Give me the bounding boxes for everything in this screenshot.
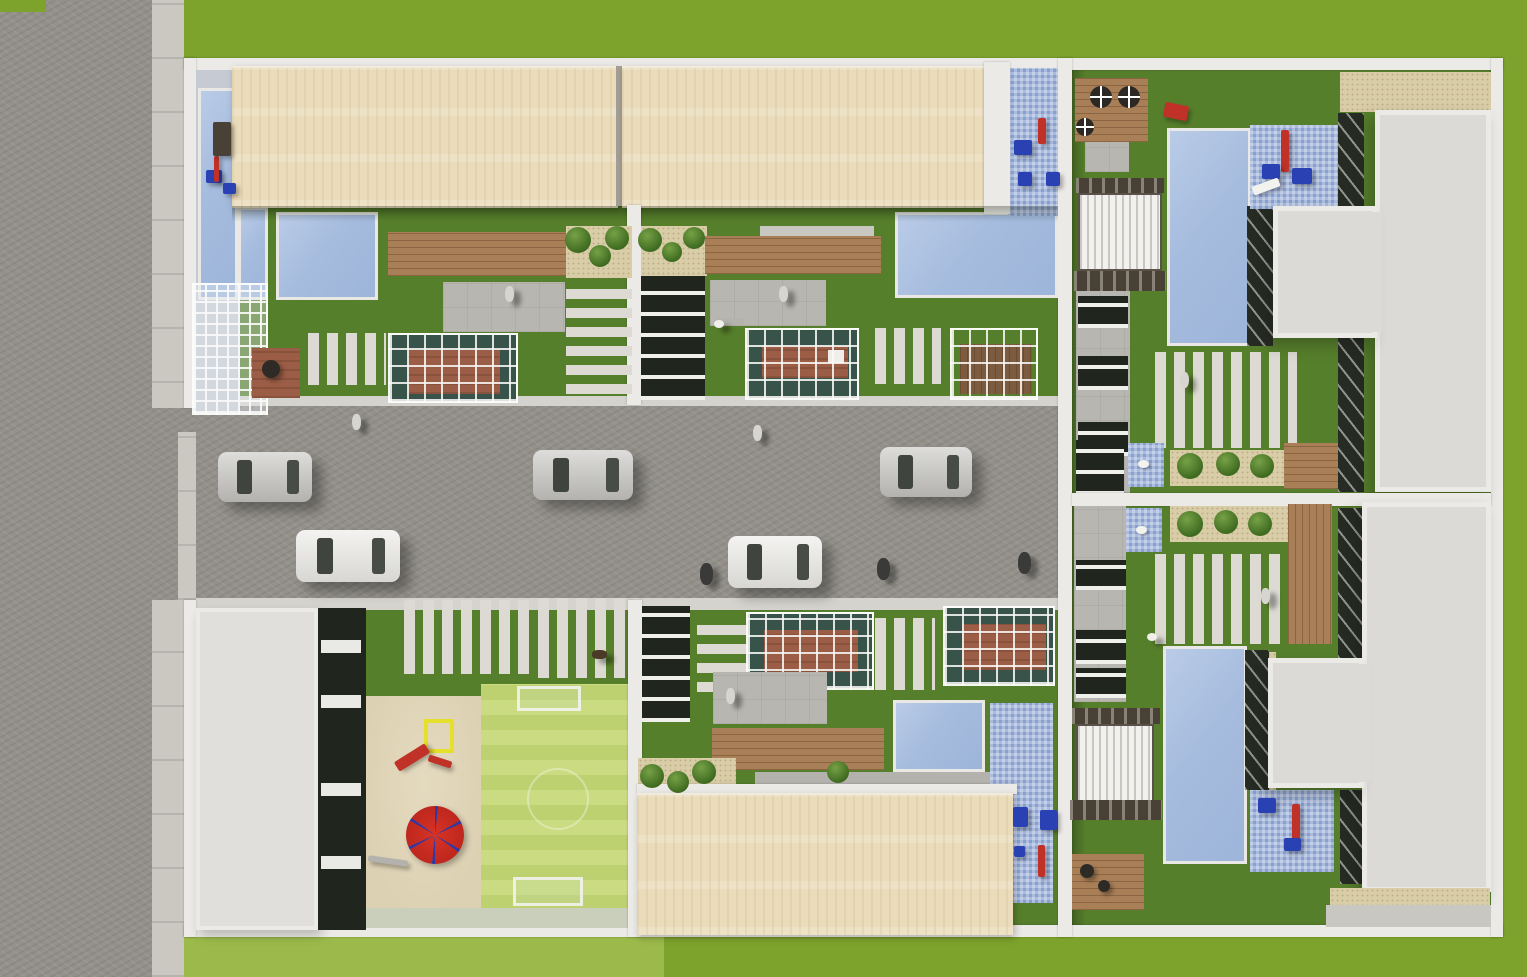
stair-landing	[321, 640, 361, 653]
play-equipment	[1038, 845, 1045, 877]
pedestrian-light	[753, 425, 762, 441]
pedestrian-light	[1261, 588, 1270, 604]
deck-col-se	[1288, 504, 1332, 644]
pitch-center-circle	[527, 768, 589, 830]
pedestrian-light	[779, 286, 788, 302]
play-equipment	[1292, 804, 1300, 840]
deck-south	[712, 728, 884, 770]
trellis-east	[950, 328, 1038, 400]
wall-west-lower	[184, 600, 196, 937]
pedestrian-light	[726, 688, 735, 704]
car-windshield	[747, 544, 762, 579]
bush	[565, 227, 591, 253]
bush	[1177, 453, 1203, 479]
beige-roof-b	[622, 66, 986, 208]
car	[728, 536, 822, 588]
stair-landing	[321, 783, 361, 796]
aerial-render-residential-complex	[0, 0, 1527, 977]
play-equipment	[1258, 798, 1276, 813]
bush	[640, 764, 664, 788]
pedestrian-light	[352, 414, 361, 430]
skylight-strips-south	[642, 606, 690, 722]
roof-shadow	[232, 206, 1058, 222]
rider-dark	[700, 563, 713, 585]
roof-seam-cover-ne	[1370, 212, 1382, 332]
bush	[605, 226, 629, 250]
pedestrian-light	[1180, 372, 1189, 388]
stair-landing	[321, 856, 361, 869]
clubhouse-roof	[196, 608, 318, 930]
patio-left-courtyard	[443, 282, 565, 332]
pedestrian-light	[505, 286, 514, 302]
patio-ne-small	[1085, 142, 1129, 172]
villa-roof-se-wing	[1268, 658, 1364, 788]
car	[880, 447, 972, 497]
beige-roof-c	[637, 793, 1013, 935]
beige-roof-a	[232, 66, 618, 208]
dog	[592, 650, 607, 659]
pergola-ne-louvers	[1078, 193, 1162, 271]
entrance-curb	[178, 432, 196, 600]
stair-landing	[321, 695, 361, 708]
play-equipment	[1262, 164, 1280, 179]
path-se-skylight-1	[1076, 560, 1126, 590]
car-windshield	[237, 460, 252, 494]
trellis-south-2	[943, 606, 1055, 686]
villa-pool-se	[1163, 646, 1247, 864]
play-equipment	[1038, 118, 1046, 144]
play-equipment	[1046, 172, 1060, 186]
path-se-skylight-2	[1076, 630, 1126, 664]
trellis-left	[388, 333, 518, 403]
bush	[1250, 454, 1274, 478]
south-pool-square	[893, 700, 985, 772]
slat-path-left-2	[566, 282, 632, 394]
glass-edge-se-pool	[1245, 650, 1269, 790]
bird	[1147, 633, 1157, 641]
bush	[683, 227, 705, 249]
car-rear-glass	[797, 544, 809, 579]
angled-skylight-se-1	[1338, 508, 1362, 658]
goal-south	[513, 877, 583, 906]
car-rear-glass	[287, 460, 299, 494]
stair-skylight-strip	[318, 608, 366, 930]
bush	[827, 761, 849, 783]
trellis-mid	[745, 328, 859, 400]
bush	[1248, 512, 1272, 536]
rider-dark	[1018, 552, 1031, 574]
pergola-ne-frame-bottom	[1074, 271, 1166, 291]
bush	[638, 228, 662, 252]
slat-path-south-2	[875, 618, 935, 690]
slat-path-ne	[1155, 352, 1297, 448]
slat-path-mid	[875, 328, 941, 384]
round-table	[1090, 86, 1112, 108]
car	[296, 530, 400, 582]
swan	[1136, 526, 1147, 534]
play-equipment	[213, 122, 231, 156]
bush	[1214, 510, 1238, 534]
sandbox-frame	[424, 719, 454, 753]
path-ne-skylight-2	[1078, 356, 1128, 390]
car-rear-glass	[606, 458, 619, 492]
deck-left-courtyard	[388, 232, 566, 276]
round-table	[1118, 86, 1140, 108]
round-table	[1076, 118, 1094, 136]
roof-east-gable	[984, 62, 1010, 214]
roof-seam-cover-se	[1358, 664, 1370, 782]
pergola-se-frame-bottom	[1070, 800, 1162, 820]
grass-patch-top-left	[0, 0, 46, 12]
play-equipment	[1014, 140, 1032, 155]
path-se-skylight-3	[1076, 668, 1126, 698]
light-green-band-bottom	[184, 937, 664, 977]
bird	[714, 320, 724, 328]
deck-right-courtyard	[705, 236, 881, 274]
angled-skylight-ne-2	[1338, 336, 1364, 492]
path-ne-skylight-1	[1078, 296, 1128, 328]
pergola-se-frame-top	[1072, 708, 1160, 724]
public-road	[0, 0, 152, 977]
car	[218, 452, 312, 502]
villa-roof-ne-main	[1375, 110, 1491, 492]
rider-dark	[877, 558, 890, 580]
villa-roof-ne-wing	[1273, 206, 1377, 338]
grill	[262, 360, 280, 378]
play-equipment	[1018, 172, 1032, 186]
apron-se-bottom	[1326, 905, 1491, 927]
play-equipment	[1013, 807, 1028, 827]
car-windshield	[553, 458, 569, 492]
play-equipment	[1040, 810, 1057, 830]
south-pale-path	[366, 908, 632, 928]
angled-skylight-se-2	[1340, 790, 1364, 884]
bush	[692, 760, 716, 784]
villa-roof-se-main	[1362, 502, 1491, 892]
bush	[1216, 452, 1240, 476]
swan	[1138, 460, 1149, 468]
courtyard-pool-b	[276, 212, 378, 300]
pergola-se-louvers	[1076, 724, 1154, 802]
pergola-ne-frame-top	[1076, 178, 1164, 193]
play-equipment	[214, 156, 219, 182]
angled-skylight-ne-1	[1338, 113, 1364, 209]
car-rear-glass	[372, 538, 386, 573]
car-rear-glass	[947, 455, 959, 489]
east-pool-lobe	[895, 212, 1058, 298]
play-equipment	[1284, 838, 1301, 851]
play-equipment	[1281, 130, 1289, 172]
skylight-strip-right-courtyard	[641, 276, 705, 400]
play-equipment	[223, 183, 236, 194]
bush	[1177, 511, 1203, 537]
car	[533, 450, 633, 500]
crosswalk-slats-a	[404, 600, 534, 674]
carousel	[406, 806, 464, 864]
play-equipment	[1292, 168, 1312, 184]
glass-edge-ne-pool	[1247, 206, 1273, 346]
slat-path-left-1	[308, 333, 386, 385]
play-equipment	[1014, 846, 1025, 857]
bush	[662, 242, 682, 262]
crosswalk-slats-b	[538, 598, 640, 678]
deck-ne-small	[1284, 443, 1338, 489]
car-windshield	[317, 538, 334, 573]
wall-east	[1491, 58, 1503, 937]
grill	[1098, 880, 1110, 892]
bush	[589, 245, 611, 267]
bush	[667, 771, 689, 793]
grill	[1080, 864, 1094, 878]
gravel-strip-ne	[1340, 72, 1491, 112]
skylight-band-ne	[1076, 440, 1124, 495]
car-windshield	[898, 455, 913, 489]
goal-north	[517, 686, 581, 711]
villa-pool-ne	[1167, 128, 1251, 346]
